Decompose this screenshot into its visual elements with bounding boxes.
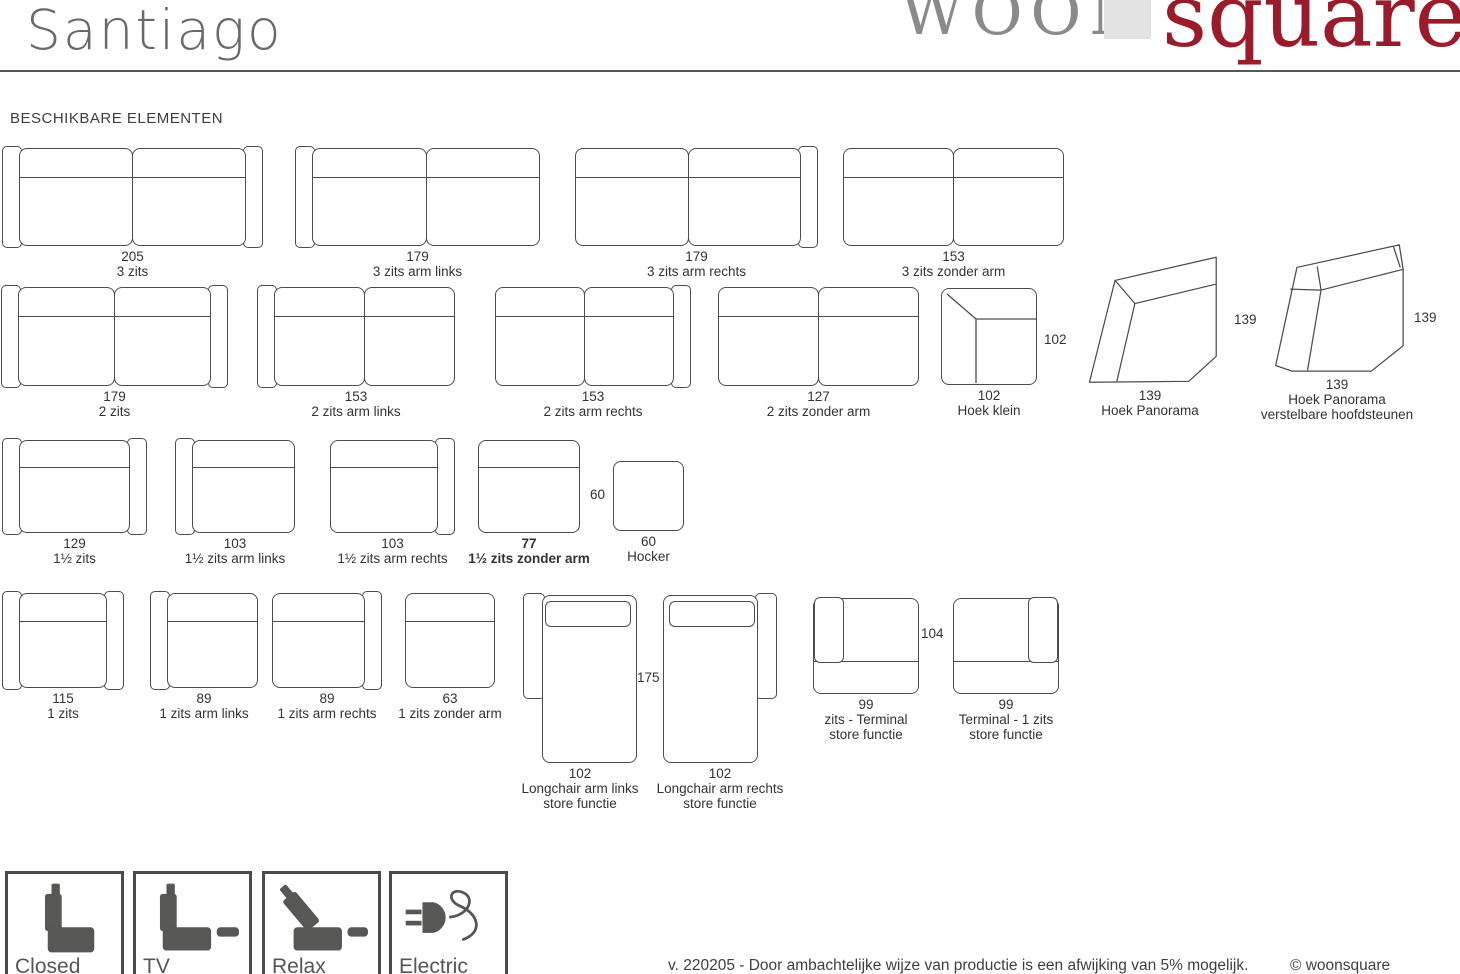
module-shape [295,148,540,246]
footer-copyright: © woonsquare [1290,957,1390,974]
sofa-seats [192,440,295,533]
longchair-body [663,595,758,763]
module-shape [495,287,691,386]
module-3-zits-arm-rechts: 1793 zits arm rechts [575,148,818,246]
module-label: 1792 zits [99,389,131,419]
module-2-zits: 1792 zits [1,287,228,386]
longchair-arm-right [755,593,777,699]
feature-box-tv: TV [133,871,252,974]
module-shape [175,440,295,533]
sofa-seat [953,148,1064,246]
sofa-seat [843,148,954,246]
module-3-zits-zonder-arm: 1533 zits zonder arm [843,148,1064,246]
module-zits-terminal-store-functie: 99zits - Terminalstore functie [813,598,919,694]
module-1-zits-arm-links: 891 zits arm links [150,593,258,688]
module-anderhalf-zits: 1291½ zits [2,440,147,533]
sofa-seats [495,287,674,386]
sofa-seat [478,440,580,533]
sofa-arm-right [362,591,382,690]
module-shape [953,598,1059,694]
seat-tv-icon [146,883,239,953]
module-shape [478,440,580,533]
dimension-label: 139 [1414,310,1437,325]
module-shape [575,148,818,246]
sofa-seats [312,148,540,246]
sofa-seats [274,287,455,386]
sofa-arm-right [243,146,263,248]
sofa-seat [274,287,365,386]
terminal-arm-left [814,597,844,663]
sofa-seat [18,287,115,386]
module-1-zits: 1151 zits [2,593,124,688]
logo-square-text: square [1162,0,1460,67]
sofa-seats [18,287,211,386]
module-shape [2,148,263,246]
module-label: 1031½ zits arm rechts [337,536,447,566]
sofa-seat [19,148,133,246]
module-label: 1533 zits zonder arm [902,249,1006,279]
sofa-arm-right [127,438,147,535]
module-label: 891 zits arm links [159,691,248,721]
module-label: 102Longchair arm rechtsstore functie [657,766,784,811]
module-label: 139Hoek Panorama [1101,388,1199,418]
module-label: 891 zits arm rechts [277,691,376,721]
sofa-seat [19,440,130,533]
dimension-label: 139 [1234,312,1257,327]
module-shape [941,288,1037,385]
module-shape [330,440,455,533]
module-1-zits-zonder-arm: 631 zits zonder arm [405,593,495,688]
feature-label: Closed [15,955,80,974]
module-1-zits-arm-rechts: 891 zits arm rechts [272,593,382,688]
sofa-arm-right [798,146,818,248]
sofa-seat [364,287,455,386]
sofa-arm-right [104,591,124,690]
sofa-seat [312,148,427,246]
module-shape [2,593,124,688]
module-shape [1080,248,1220,385]
catalog-page: Santiago WOON square BESCHIKBARE ELEMENT… [0,0,1460,974]
sofa-seat [818,287,919,386]
module-shape [718,287,919,386]
section-heading: BESCHIKBARE ELEMENTEN [10,110,223,127]
sofa-seat [688,148,802,246]
module-label: 1793 zits arm rechts [647,249,746,279]
module-2-zits-arm-rechts: 1532 zits arm rechts [495,287,691,386]
sofa-arm-right [208,285,228,388]
module-shape [150,593,258,688]
header-divider [0,70,1460,72]
sofa-seat [495,287,585,386]
module-label: 1031½ zits arm links [185,536,286,566]
module-shape [272,593,382,688]
module-shape [813,598,919,694]
module-label: 771½ zits zonder arm [468,536,590,566]
feature-box-relax: Relax [262,871,381,974]
module-label: 139Hoek Panoramaverstelbare hoofdsteunen [1261,377,1413,422]
seat-upright-icon [18,883,111,953]
dimension-label: 60 [590,487,605,502]
longchair-backrest [669,601,755,627]
dimension-label: 104 [921,626,944,641]
module-2-zits-arm-links: 1532 zits arm links [257,287,455,386]
module-shape [1,287,228,386]
module-anderhalf-zits-arm-links: 1031½ zits arm links [175,440,295,533]
module-label: 1532 zits arm rechts [543,389,642,419]
longchair-body [542,595,637,763]
sofa-seats [478,440,580,533]
feature-box-closed: Closed [5,871,124,974]
module-label: 1532 zits arm links [311,389,400,419]
module-3-zits: 2053 zits [2,148,263,246]
terminal-arm-right [1028,597,1058,663]
page-title: Santiago [26,0,283,62]
sofa-seats [405,593,495,688]
module-anderhalf-zits-arm-rechts: 1031½ zits arm rechts [330,440,455,533]
module-shape [257,287,455,386]
terminal-body [953,598,1059,694]
module-label: 1272 zits zonder arm [767,389,871,419]
module-shape [613,461,684,531]
module-label: 99zits - Terminalstore functie [824,697,907,742]
module-label: 60Hocker [627,534,670,564]
sofa-seat [575,148,689,246]
sofa-seat [192,440,295,533]
module-hocker: 60Hocker [613,461,684,531]
sofa-seat [426,148,541,246]
module-3-zits-arm-links: 1793 zits arm links [295,148,540,246]
sofa-seat [114,287,211,386]
seat-relax-icon [275,883,368,953]
sofa-seat [132,148,246,246]
footer-note: v. 220205 - Door ambachtelijke wijze van… [668,957,1248,974]
module-shape [405,593,495,688]
sofa-seats [19,148,246,246]
brand-logo: WOON square [900,0,1460,70]
module-label: 102Hoek klein [957,388,1020,418]
module-anderhalf-zits-zonder-arm: 771½ zits zonder arm [478,440,580,533]
sofa-seats [718,287,919,386]
sofa-seats [19,593,107,688]
sofa-arm-right [435,438,455,535]
feature-box-electric: Electric [389,871,508,974]
module-label: 102Longchair arm linksstore functie [521,766,638,811]
power-plug-icon [402,883,495,953]
sofa-seat [584,287,674,386]
module-hoek-panorama: 139Hoek Panorama [1080,248,1220,385]
sofa-seats [19,440,130,533]
sofa-seat [19,593,107,688]
sofa-seat [167,593,258,688]
sofa-seat [718,287,819,386]
sofa-seats [272,593,365,688]
module-hoek-panorama-verstelbare-hoofdsteunen: 139Hoek Panoramaverstelbare hoofdsteunen [1267,242,1407,374]
module-label: 631 zits zonder arm [398,691,502,721]
module-label: 1291½ zits [53,536,96,566]
module-terminal-1-zits-store-functie: 99Terminal - 1 zitsstore functie [953,598,1059,694]
hocker-body [613,461,684,531]
sofa-seats [330,440,438,533]
module-shape [663,595,777,763]
module-label: 2053 zits [117,249,149,279]
sofa-seats [843,148,1064,246]
module-longchair-arm-rechts: 102Longchair arm rechtsstore functie [663,595,777,763]
feature-label: Electric [399,955,468,974]
module-shape [2,440,147,533]
sofa-seats [575,148,801,246]
terminal-body [813,598,919,694]
module-shape [1267,242,1407,374]
longchair-backrest [545,601,631,627]
dimension-label: 175 [637,670,660,685]
module-label: 1151 zits [47,691,79,721]
module-shape [523,595,637,763]
module-label: 99Terminal - 1 zitsstore functie [959,697,1054,742]
dimension-label: 102 [1044,332,1067,347]
sofa-seat [405,593,495,688]
sofa-seat [330,440,438,533]
module-longchair-arm-links: 102Longchair arm linksstore functie [523,595,637,763]
feature-label: TV [143,955,170,974]
module-label: 1793 zits arm links [373,249,462,279]
sofa-seat [272,593,365,688]
module-hoek-klein: 102Hoek klein [941,288,1037,385]
sofa-seats [167,593,258,688]
feature-label: Relax [272,955,326,974]
sofa-arm-right [671,285,691,388]
module-2-zits-zonder-arm: 1272 zits zonder arm [718,287,919,386]
module-shape [843,148,1064,246]
logo-square-icon [1104,0,1151,39]
